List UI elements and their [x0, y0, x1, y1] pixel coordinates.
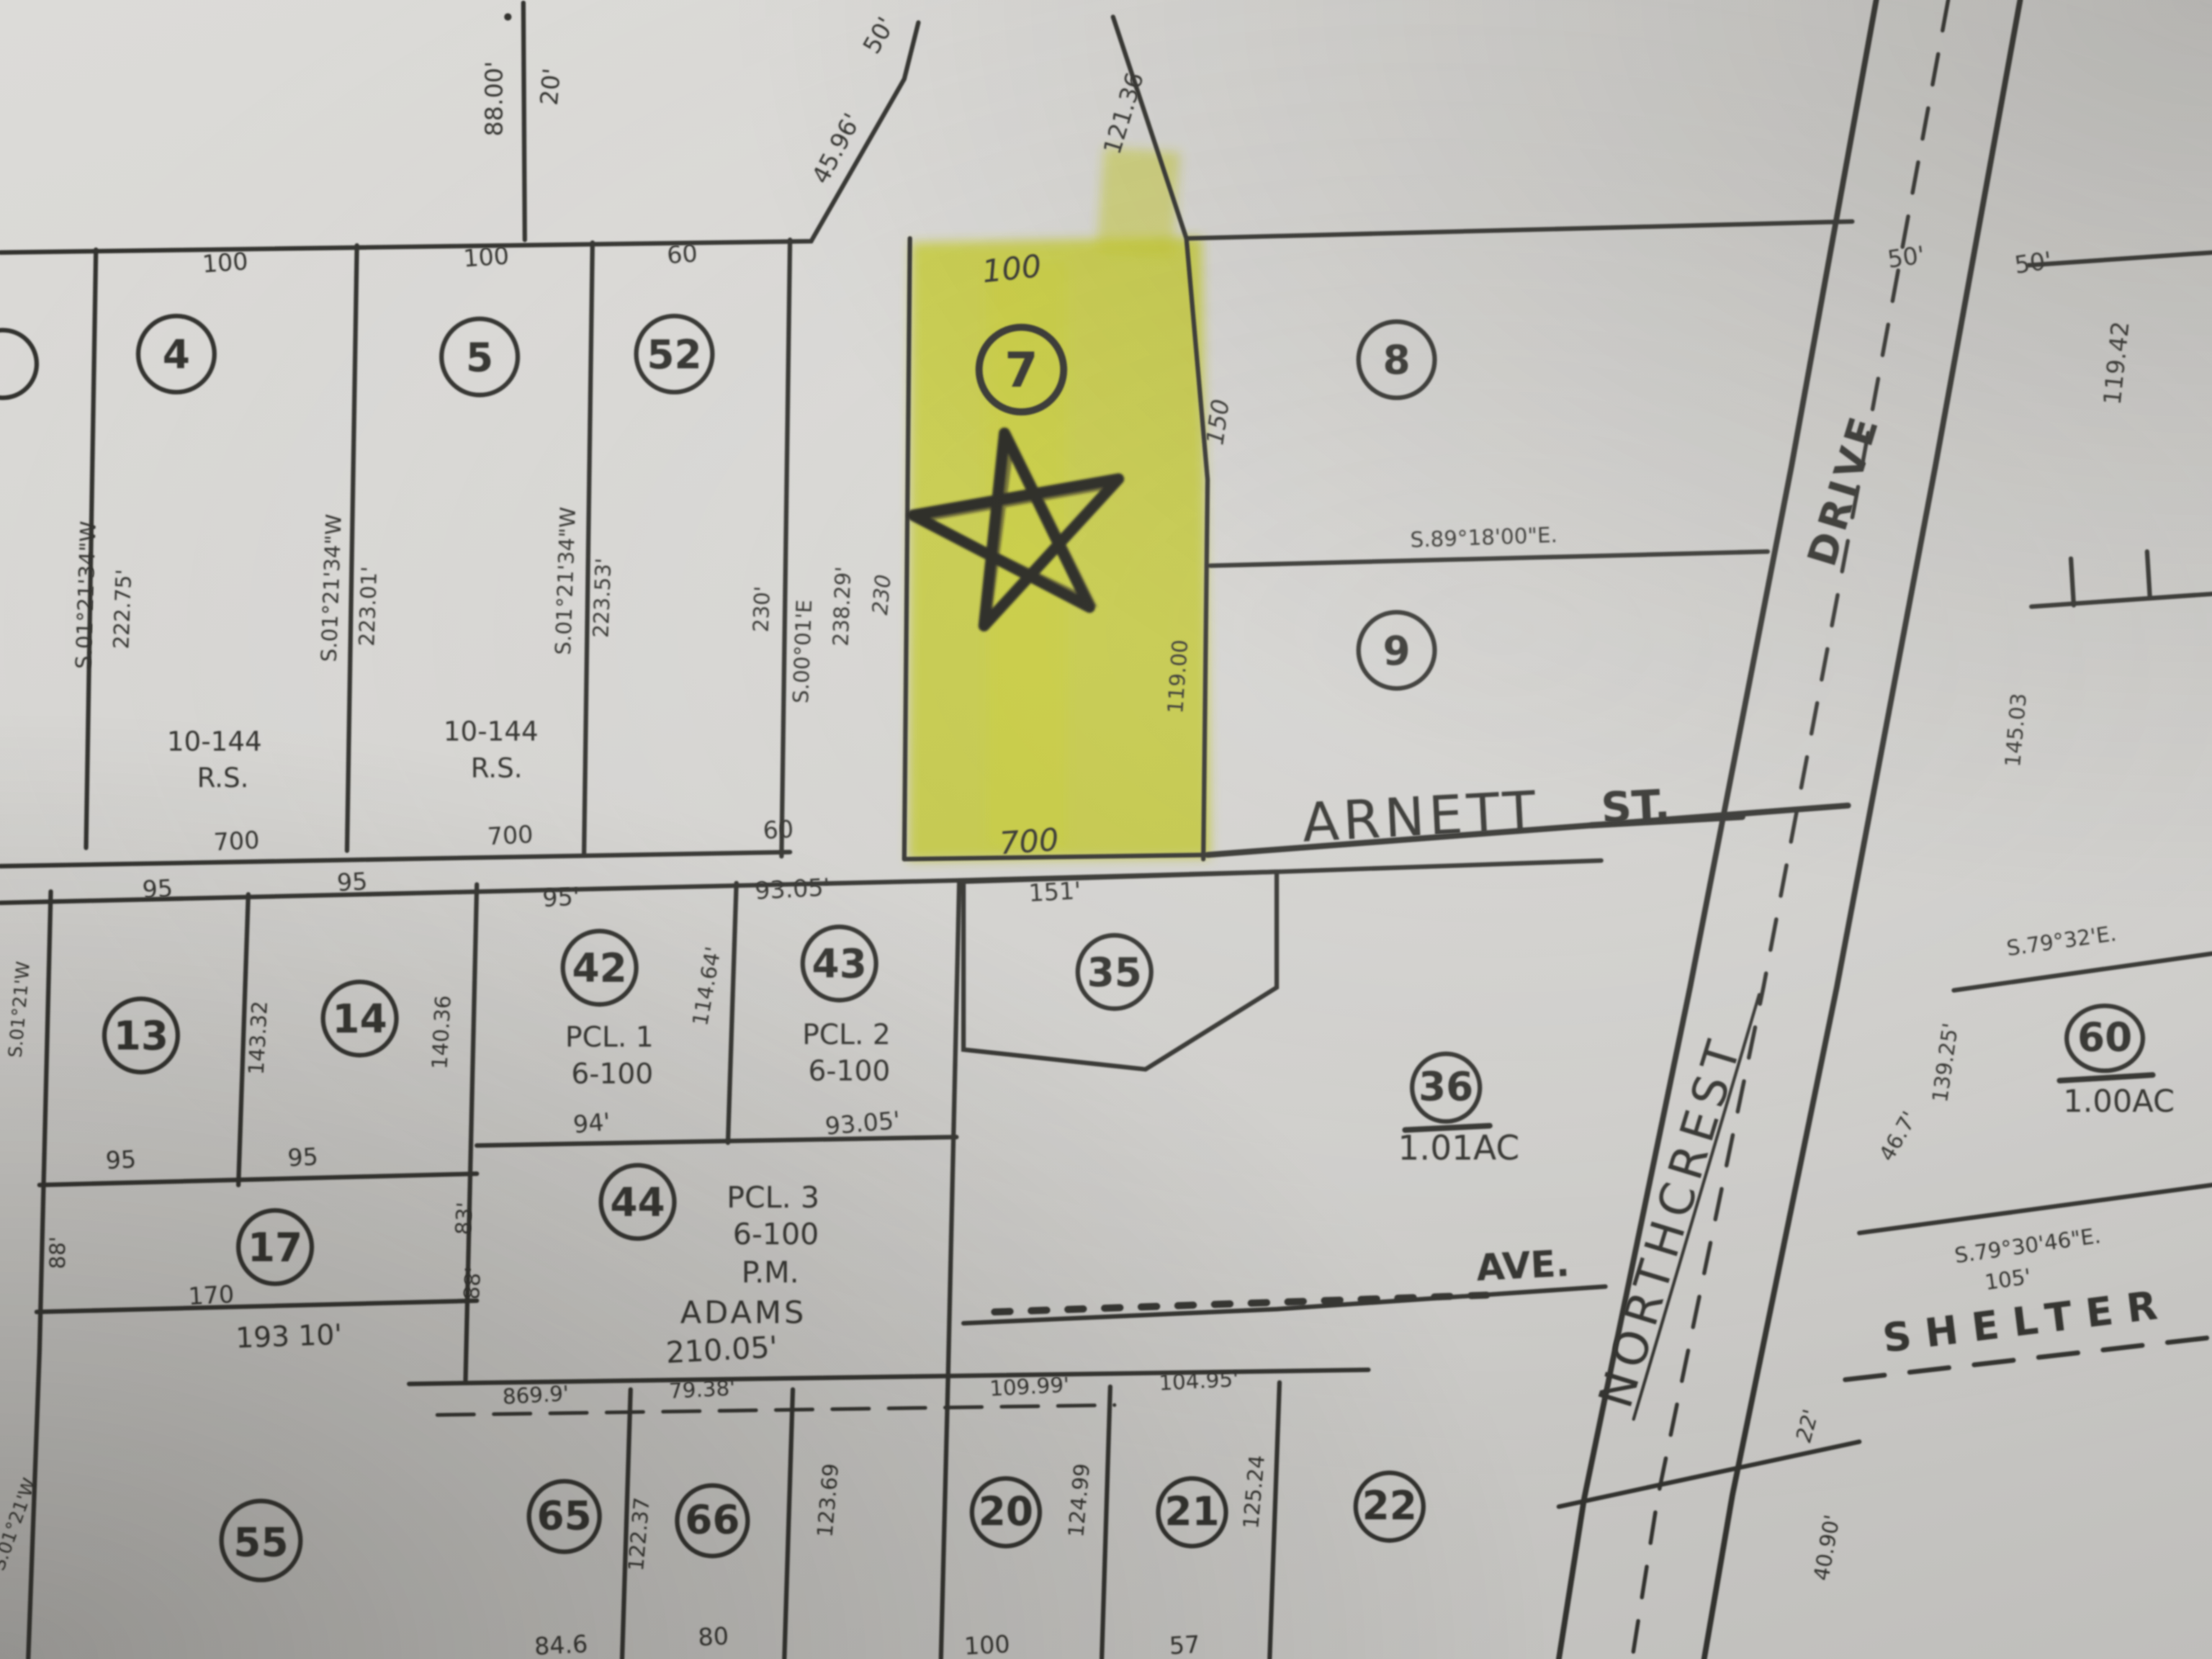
dim-700-a: 700: [213, 826, 261, 856]
lot43-number: 43: [812, 941, 867, 987]
lot5-52-line: [584, 243, 593, 853]
lot36-number: 36: [1419, 1064, 1473, 1110]
dim-50-road-east: 50': [2013, 246, 2053, 279]
dim-143-32: 143.32: [244, 1000, 272, 1075]
dim-223-53: 223.53': [588, 557, 616, 638]
dim-83: 83': [451, 1202, 477, 1236]
dim-50-notch: 50': [858, 12, 901, 58]
dim-95-lot14-btm: 95: [287, 1142, 318, 1172]
lot20-west-line: [941, 1380, 948, 1659]
lot17-south-line: [37, 1300, 477, 1312]
lot20-number: 20: [979, 1488, 1033, 1534]
dim-95-lot42-top: 95': [541, 882, 580, 912]
dim-125-24: 125.24: [1238, 1454, 1269, 1529]
dim-151-lot35: 151': [1028, 876, 1082, 907]
highlighter-tail: [1097, 147, 1180, 256]
dim-124-99: 124.99: [1064, 1462, 1094, 1538]
pcl1-map: 6-100: [571, 1058, 653, 1091]
bearing-lot60-south: S.79°30'46"E.: [1953, 1223, 2102, 1268]
dim-95-lot14-top: 95: [336, 867, 368, 896]
dim-60-street: 60: [763, 815, 794, 845]
northcrest-street-type: DRIVE: [1799, 408, 1889, 572]
bearing-corridor: S.00°01'E: [788, 599, 817, 703]
survey-dot: [504, 13, 511, 20]
dim-20: 20': [535, 67, 566, 107]
lot13-14-south-line: [40, 1174, 477, 1185]
dim-193-10: 193 10': [235, 1319, 343, 1355]
pcl3-label: PCL. 3: [727, 1180, 819, 1215]
dim-238-29: 238.29': [829, 566, 856, 647]
lot14-number: 14: [332, 996, 387, 1042]
lot66-east-line: [784, 1390, 793, 1659]
dim-46-7: 46.7': [1874, 1107, 1922, 1166]
rs2-type: R.S.: [471, 752, 523, 784]
dim-104-95: 104.95': [1159, 1367, 1239, 1395]
dim-lot7-bottom-hand: 700: [998, 822, 1060, 863]
pcl3-pm: P.M.: [742, 1255, 799, 1290]
dim-170: 170: [188, 1280, 235, 1310]
dim-lot52-width: 60: [666, 239, 698, 269]
lot7-number: 7: [1004, 342, 1038, 398]
dim-88-lot17-west: 88': [45, 1236, 70, 1269]
north-boundary-west: [0, 22, 918, 252]
lot60-south-line: [1859, 1185, 2212, 1233]
lot60-acreage: 1.00AC: [2063, 1084, 2175, 1120]
dim-223-01: 223.01': [354, 566, 382, 647]
dim-95-lot13-btm: 95: [105, 1145, 137, 1174]
lot52-number: 52: [647, 331, 701, 377]
east-block-tick-b: [2147, 552, 2150, 598]
dim-121-36: 121.36: [1098, 69, 1149, 158]
bearing-lot4-west: S.01°21'34"W: [71, 521, 101, 670]
plat-map-drawing: 4 5 52 7 8 9 13 14 42 43 35 36 17 44 60 …: [0, 0, 2212, 1659]
dim-150: 150: [1200, 397, 1234, 446]
pcl2-label: PCL. 2: [802, 1019, 891, 1051]
lot55-number: 55: [233, 1519, 288, 1565]
dim-145-03: 145.03: [2000, 692, 2031, 768]
arnett-street-name: ARNETT: [1300, 779, 1541, 854]
bearing-lot60-north: S.79°32'E.: [2005, 921, 2118, 961]
lot66-number: 66: [685, 1497, 739, 1543]
dim-50-road-west: 50': [1886, 240, 1926, 274]
northcrest-east-edge: [1704, 0, 2020, 1659]
lot36-acreage: 1.01AC: [1398, 1128, 1519, 1168]
lot60-underline: [2059, 1075, 2152, 1081]
ave-street-line: [963, 1287, 1605, 1323]
dim-93-05-top: 93.05': [754, 873, 830, 904]
lot22-number: 22: [1362, 1483, 1417, 1529]
dim-100-lot20: 100: [963, 1630, 1011, 1659]
lot65-number: 65: [537, 1493, 592, 1539]
east-block-tick-a: [2071, 559, 2074, 606]
lot21-number: 21: [1164, 1488, 1219, 1534]
dim-lot7-top-hand: 100: [981, 248, 1043, 290]
lot4-5-line: [347, 246, 357, 850]
dim-119-42: 119.42: [2098, 320, 2135, 406]
bearing-lot4-5: S.01°21'34"W: [317, 513, 346, 662]
dim-869-9: 869.9': [502, 1381, 570, 1409]
dim-222-75: 222.75': [109, 569, 136, 649]
east-block-north-line: [2031, 594, 2212, 607]
dim-230-hand: 230: [868, 573, 896, 616]
dim-139-25: 139.25': [1928, 1022, 1963, 1105]
dim-105: 105': [1983, 1264, 2032, 1295]
dim-lot5-width: 100: [462, 241, 510, 272]
lot14-42-line: [466, 884, 477, 1380]
shelter-street-name: SHELTER: [1880, 1280, 2174, 1362]
dim-109-99: 109.99': [989, 1372, 1069, 1401]
lot8-9-line: [1210, 552, 1768, 566]
lot4-number: 4: [163, 331, 190, 377]
rs1-type: R.S.: [197, 762, 249, 793]
lot9-number: 9: [1383, 628, 1411, 674]
dim-40-90: 40.90': [1809, 1513, 1844, 1583]
dim-84-6: 84.6: [534, 1629, 588, 1659]
bearing-left-edge-mid: S.01°21'W: [5, 961, 35, 1058]
lot60-number: 60: [2077, 1015, 2132, 1061]
pcl3-map: 6-100: [733, 1217, 819, 1251]
dim-22: 22': [1791, 1407, 1824, 1445]
dim-lot4-width: 100: [202, 247, 249, 278]
rs1-number: 10-144: [167, 725, 262, 757]
lot52-east-line: [781, 240, 790, 856]
arnett-street-type: ST.: [1600, 780, 1671, 833]
lot42-43-line: [728, 883, 737, 1142]
arnett-north-line-west: [0, 852, 790, 866]
cross-road-line: [1559, 1442, 1859, 1506]
dim-230-lot52: 230': [749, 585, 775, 632]
north-boundary-east: [1187, 222, 1853, 239]
pcl2-map: 6-100: [809, 1056, 891, 1088]
north-stub-line: [523, 3, 525, 240]
lot60-north-line: [1954, 953, 2212, 990]
dim-123-69: 123.69: [812, 1462, 843, 1538]
dim-119-00: 119.00: [1163, 639, 1192, 714]
rs2-number: 10-144: [444, 716, 539, 747]
lot35-number: 35: [1087, 949, 1142, 995]
dim-80: 80: [698, 1622, 729, 1651]
bearing-lot5-52: S.01°21'34"W: [551, 507, 580, 656]
lot20-21-line: [1102, 1387, 1110, 1659]
ne-block-line: [2028, 253, 2212, 266]
lot43-35-line: [948, 881, 960, 1380]
dim-88-lot44-west: 88': [459, 1267, 485, 1300]
dim-700-b: 700: [487, 820, 534, 850]
lot13-number: 13: [114, 1013, 168, 1059]
dim-79-38: 79.38': [668, 1375, 736, 1403]
dim-210-05: 210.05': [665, 1330, 779, 1370]
lot44-number: 44: [610, 1179, 665, 1226]
plat-map-photo: 4 5 52 7 8 9 13 14 42 43 35 36 17 44 60 …: [0, 0, 2212, 1659]
lot21-east-line: [1269, 1382, 1280, 1659]
dim-114-64: 114.64': [688, 945, 726, 1028]
lot5-number: 5: [466, 334, 493, 380]
lot42-number: 42: [572, 945, 626, 992]
dim-93-05-btm: 93.05': [824, 1106, 901, 1141]
dim-94-lot42-btm: 94': [572, 1107, 611, 1138]
lot17-number: 17: [248, 1225, 302, 1271]
pcl1-label: PCL. 1: [565, 1022, 654, 1054]
lot42-43-south-line: [477, 1137, 956, 1146]
ave-street-name: AVE.: [1475, 1243, 1570, 1290]
pcl3-name: ADAMS: [680, 1295, 807, 1331]
lot8-number: 8: [1383, 337, 1411, 383]
dim-57: 57: [1169, 1630, 1200, 1659]
dim-45-96: 45.96': [806, 109, 866, 189]
dim-95-lot13-top: 95: [142, 874, 174, 904]
dim-88-00: 88.00': [480, 61, 508, 136]
dim-140-36: 140.36: [427, 994, 455, 1069]
bearing-lot8-9: S.89°18'00"E.: [1410, 523, 1557, 552]
sliver-lot-circle: [0, 330, 37, 397]
lot13-west-line: [28, 891, 50, 1659]
